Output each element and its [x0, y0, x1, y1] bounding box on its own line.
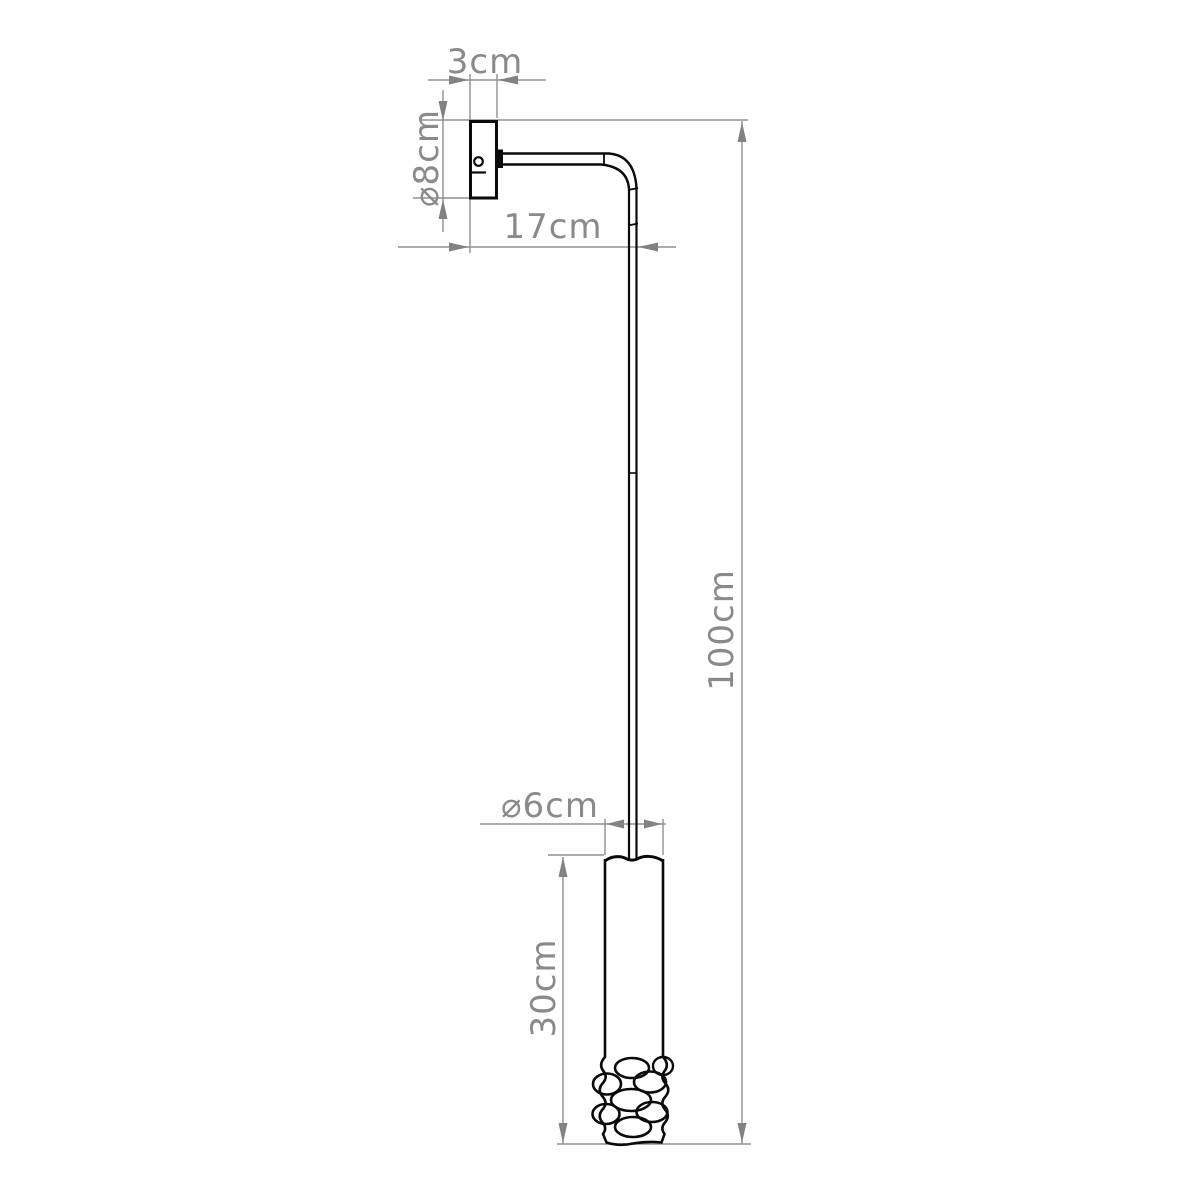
label-plate-diameter: ⌀8cm [407, 109, 447, 207]
arm [503, 154, 637, 190]
bubble-1 [615, 1058, 649, 1078]
stem-rod [628, 188, 638, 859]
plate-screw-detail [474, 157, 483, 166]
dimension-labels: 3cm ⌀8cm 17cm 100cm ⌀6cm 30cm [407, 42, 742, 1038]
arm-connector [496, 150, 503, 169]
technical-drawing-canvas: 3cm ⌀8cm 17cm 100cm ⌀6cm 30cm [0, 0, 1200, 1200]
wall-lamp-dimension-drawing: 3cm ⌀8cm 17cm 100cm ⌀6cm 30cm [0, 0, 1200, 1200]
dim-100cm-arrow-bottom-icon [738, 1123, 747, 1143]
dim-30cm-arrow-bottom-icon [559, 1123, 568, 1143]
dim-6cm-arrow-right-icon [644, 820, 662, 829]
shade-top-rim [605, 856, 663, 861]
lamp-shade [593, 856, 674, 1144]
dim-17cm-arrow-right-icon [638, 243, 658, 252]
bubble-6 [593, 1104, 620, 1124]
dim-17cm-arrow-left-icon [449, 243, 469, 252]
label-plate-depth: 3cm [447, 42, 523, 82]
dim-100cm-arrow-top-icon [738, 122, 747, 142]
wall-plate [471, 122, 504, 199]
label-shade-height: 30cm [524, 938, 564, 1037]
label-arm-length: 17cm [503, 207, 602, 247]
label-shade-diameter: ⌀6cm [501, 786, 599, 826]
arm-inner-edge [503, 165, 629, 190]
label-overall-drop: 100cm [702, 569, 742, 691]
arm-outer-edge [503, 154, 637, 189]
bubble-8 [615, 1117, 651, 1137]
dim-6cm-arrow-left-icon [606, 820, 624, 829]
dim-30cm-arrow-top-icon [559, 857, 568, 877]
